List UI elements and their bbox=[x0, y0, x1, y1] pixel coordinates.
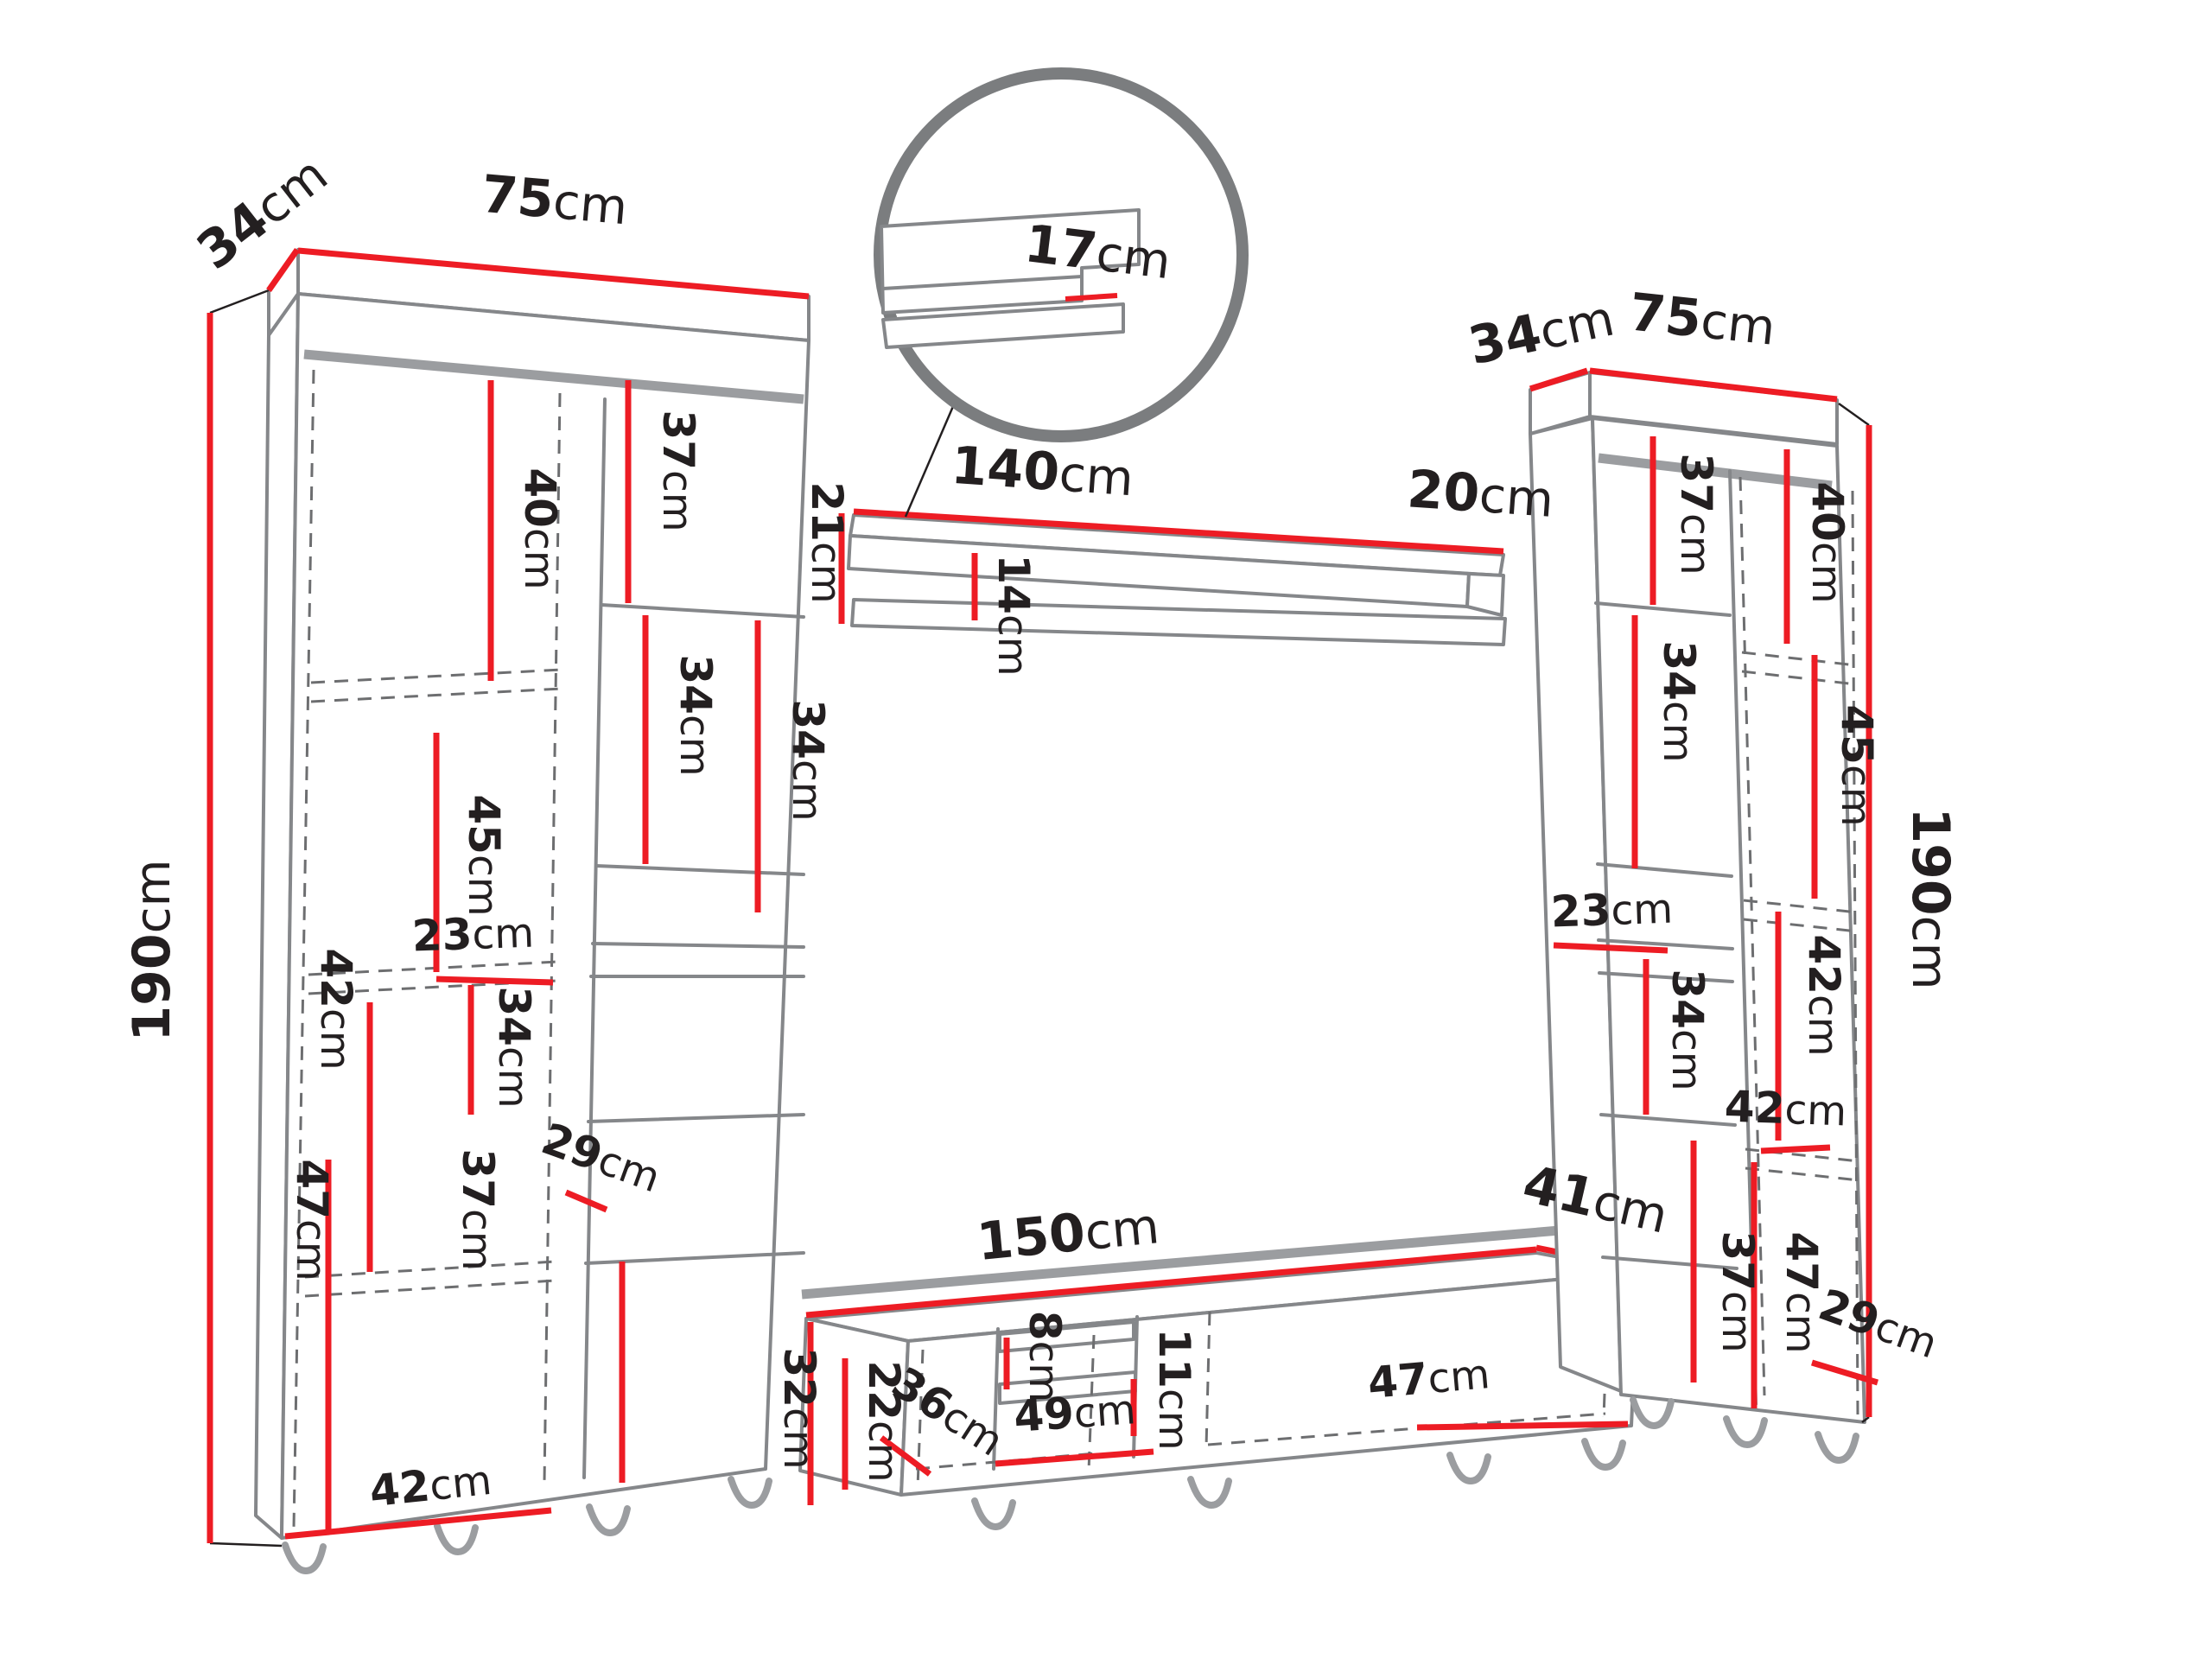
label-lc-comp-45: 45cm bbox=[459, 794, 509, 916]
label-tv-11: 11cm bbox=[1149, 1328, 1199, 1450]
label-lc-height: 190cm bbox=[122, 859, 182, 1041]
label-shelf-14: 14cm bbox=[988, 554, 1039, 676]
label-lc-comp-40: 40cm bbox=[515, 467, 565, 589]
extension-line bbox=[210, 1543, 282, 1546]
label-shelf-140: 140cm bbox=[950, 435, 1136, 509]
label-tv-32: 32cm bbox=[774, 1347, 824, 1469]
label-rc-comp-40: 40cm bbox=[1802, 481, 1853, 603]
wall-shelf bbox=[842, 512, 1505, 645]
label-lc-comp-47: 47cm bbox=[287, 1159, 337, 1281]
label-rc-depth: 34cm bbox=[1464, 288, 1619, 378]
wall-shelf-lip bbox=[852, 600, 1505, 645]
label-lc-width: 75cm bbox=[479, 164, 630, 238]
label-tv-49: 49cm bbox=[1012, 1383, 1137, 1442]
label-lc-gap-23: 23cm bbox=[411, 907, 535, 962]
label-rc-shelf-37: 37cm bbox=[1671, 453, 1721, 575]
label-rc-comp-47: 47cm bbox=[1777, 1231, 1827, 1353]
furniture-dimension-diagram: 34cm 75cm 190cm 40cm 45cm 42cm 47cm 42cm… bbox=[0, 0, 2212, 1659]
label-lc-shelf-34c: 34cm bbox=[489, 986, 539, 1108]
label-lc-comp-42: 42cm bbox=[311, 948, 361, 1070]
label-rc-comp-42v: 42cm bbox=[1799, 934, 1849, 1056]
label-lc-shelf-34a: 34cm bbox=[671, 654, 721, 776]
label-lc-shelf-37b: 37cm bbox=[453, 1148, 503, 1270]
extension-line bbox=[210, 290, 269, 313]
label-rc-height: 190cm bbox=[1900, 807, 1961, 989]
dimension-17 bbox=[1065, 296, 1117, 299]
label-rc-gap-23: 23cm bbox=[1550, 883, 1674, 938]
label-rc-comp-42w: 42cm bbox=[1724, 1082, 1847, 1136]
label-tv-47: 47cm bbox=[1366, 1348, 1492, 1408]
diagram-canvas: 34cm 75cm 190cm 40cm 45cm 42cm 47cm 42cm… bbox=[0, 0, 2212, 1659]
detail-leader-line bbox=[906, 404, 954, 517]
label-rc-shelf-37b: 37cm bbox=[1713, 1230, 1763, 1352]
label-rc-comp-45: 45cm bbox=[1832, 704, 1882, 826]
label-shelf-21: 21cm bbox=[802, 481, 852, 603]
wall-shelf-end-cap bbox=[1467, 574, 1503, 615]
label-rc-width: 75cm bbox=[1626, 282, 1778, 357]
label-lc-shelf-37: 37cm bbox=[653, 410, 703, 531]
label-rc-shelf-34a: 34cm bbox=[1654, 640, 1704, 762]
extension-line bbox=[1839, 404, 1869, 425]
label-tv-150: 150cm bbox=[975, 1195, 1162, 1273]
label-rc-shelf-34b: 34cm bbox=[1662, 969, 1713, 1090]
label-lc-shelf-34b: 34cm bbox=[783, 699, 833, 821]
